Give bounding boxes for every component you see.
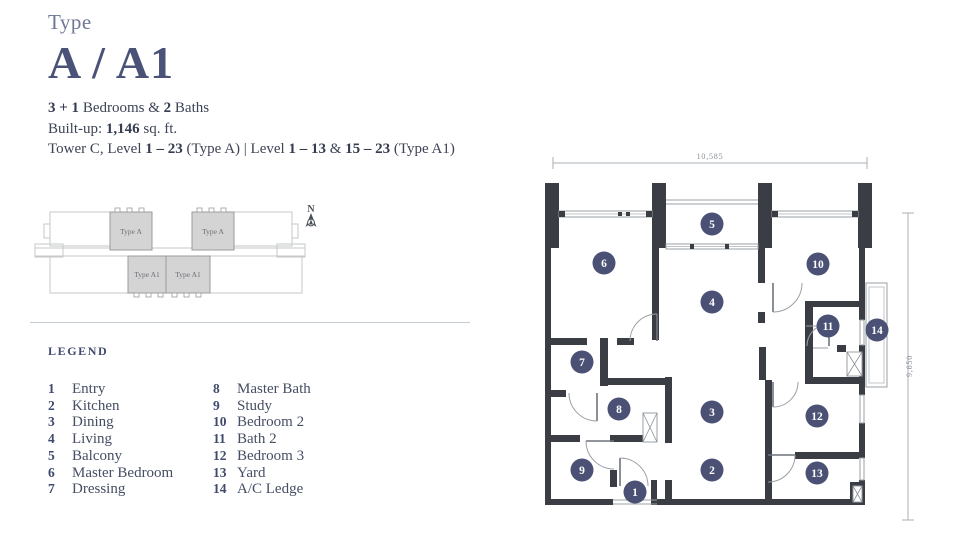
room-marker-number: 14 (871, 325, 883, 337)
legend-item-number: 13 (213, 465, 235, 482)
unit-blocks: Type A Type A Type A1 Type A1 (110, 208, 234, 297)
legend-item-number: 2 (48, 398, 70, 415)
legend-column-2: 8Master Bath9Study10Bedroom 211Bath 212B… (213, 381, 311, 498)
tower-range-b2: 15 – 23 (345, 141, 390, 157)
tower-suffix: (Type A1) (390, 141, 455, 157)
service-shafts (643, 352, 862, 502)
door-bedroom2 (773, 283, 802, 312)
floor-plan: 10,585 9,650 (520, 140, 940, 540)
room-marker-number: 1 (632, 487, 638, 499)
legend: LEGEND 1Entry2Kitchen3Dining4Living5Balc… (48, 344, 488, 498)
legend-item-label: Bedroom 3 (237, 448, 311, 465)
specs-line-builtup: Built-up: 1,146 sq. ft. (48, 119, 518, 140)
tower-range-a: 1 – 23 (145, 141, 183, 157)
type-a-label-2: Type A (202, 227, 224, 236)
beds-count: 3 + 1 (48, 100, 79, 116)
legend-item-number: 9 (213, 398, 235, 415)
room-marker-number: 12 (811, 411, 823, 423)
room-marker-number: 2 (709, 465, 715, 477)
legend-item-label: Study (237, 398, 311, 415)
room-marker-13: 13 (806, 462, 829, 485)
type-a1-label-1: Type A1 (134, 270, 160, 279)
room-marker-number: 11 (823, 321, 834, 333)
room-marker-3: 3 (701, 401, 724, 424)
balcony-railing (666, 200, 758, 204)
room-marker-2: 2 (701, 459, 724, 482)
legend-item-label: Bedroom 2 (237, 414, 311, 431)
legend-item-label: Balcony (72, 448, 213, 465)
legend-item-number: 8 (213, 381, 235, 398)
legend-item-label: Yard (237, 465, 311, 482)
legend-columns: 1Entry2Kitchen3Dining4Living5Balcony6Mas… (48, 381, 488, 498)
floorplan-brochure-page: Type A / A1 3 + 1 Bedrooms & 2 Baths Bui… (0, 0, 956, 547)
tower-mid: (Type A) | Level (183, 141, 289, 157)
room-marker-number: 13 (811, 468, 823, 480)
legend-item-label: Entry (72, 381, 213, 398)
page-title: A / A1 (48, 37, 518, 89)
room-marker-number: 7 (579, 357, 585, 369)
type-a-label-1: Type A (120, 227, 142, 236)
legend-item-number: 12 (213, 448, 235, 465)
legend-item-number: 4 (48, 431, 70, 448)
legend-item-label: Dining (72, 414, 213, 431)
legend-item-number: 5 (48, 448, 70, 465)
dimension-height-label: 9,650 (905, 355, 914, 377)
room-marker-14: 14 (866, 319, 889, 342)
room-marker-number: 8 (616, 404, 622, 416)
balcony-sliding-door (666, 244, 758, 249)
tower-range-b1: 1 – 13 (288, 141, 326, 157)
dimension-width-label: 10,585 (697, 152, 724, 161)
section-divider (30, 322, 470, 323)
builtup-label: Built-up: (48, 121, 106, 137)
room-markers: 1234567891011121314 (571, 213, 889, 504)
room-marker-10: 10 (807, 253, 830, 276)
north-arrow-icon (306, 213, 317, 227)
room-marker-7: 7 (571, 351, 594, 374)
tower-amp: & (326, 141, 345, 157)
legend-item-label: Master Bedroom (72, 465, 213, 482)
site-key-plan: Type A Type A Type A1 Type A1 N (30, 198, 350, 316)
room-marker-12: 12 (806, 405, 829, 428)
legend-item-number: 3 (48, 414, 70, 431)
baths-text: Baths (171, 100, 209, 116)
unit-specs: 3 + 1 Bedrooms & 2 Baths Built-up: 1,146… (48, 98, 518, 160)
legend-item-label: Master Bath (237, 381, 311, 398)
type-label: Type (48, 10, 518, 35)
room-marker-number: 9 (579, 465, 585, 477)
room-marker-6: 6 (593, 252, 616, 275)
legend-item-number: 7 (48, 481, 70, 498)
type-a1-label-2: Type A1 (175, 270, 201, 279)
room-marker-11: 11 (817, 315, 840, 338)
dimension-width: 10,585 (553, 152, 867, 169)
specs-line-tower: Tower C, Level 1 – 23 (Type A) | Level 1… (48, 139, 518, 160)
room-marker-number: 3 (709, 407, 715, 419)
dimension-height: 9,650 (902, 213, 914, 520)
door-bedroom3 (773, 382, 798, 407)
legend-item-number: 11 (213, 431, 235, 448)
legend-item-label: Kitchen (72, 398, 213, 415)
room-marker-number: 10 (812, 259, 824, 271)
room-marker-number: 6 (601, 258, 607, 270)
legend-item-number: 14 (213, 481, 235, 498)
specs-line-bedrooms: 3 + 1 Bedrooms & 2 Baths (48, 98, 518, 119)
legend-item-label: A/C Ledge (237, 481, 311, 498)
room-marker-4: 4 (701, 291, 724, 314)
legend-item-number: 10 (213, 414, 235, 431)
legend-item-label: Dressing (72, 481, 213, 498)
legend-item-label: Living (72, 431, 213, 448)
door-yard (768, 455, 795, 482)
north-indicator: N (306, 204, 317, 227)
builtup-value: 1,146 (106, 121, 140, 137)
builtup-suffix: sq. ft. (140, 121, 178, 137)
room-marker-9: 9 (571, 459, 594, 482)
room-marker-1: 1 (624, 481, 647, 504)
north-label: N (307, 204, 315, 215)
tower-prefix: Tower C, Level (48, 141, 145, 157)
legend-item-number: 1 (48, 381, 70, 398)
room-marker-5: 5 (701, 213, 724, 236)
room-marker-8: 8 (608, 398, 631, 421)
legend-title: LEGEND (48, 344, 488, 359)
legend-item-label: Bath 2 (237, 431, 311, 448)
legend-column-1: 1Entry2Kitchen3Dining4Living5Balcony6Mas… (48, 381, 213, 498)
room-marker-number: 5 (709, 219, 715, 231)
header: Type A / A1 3 + 1 Bedrooms & 2 Baths Bui… (48, 10, 518, 160)
door-master-bath (569, 393, 597, 421)
room-marker-number: 4 (709, 297, 715, 309)
legend-item-number: 6 (48, 465, 70, 482)
beds-text: Bedrooms & (79, 100, 164, 116)
